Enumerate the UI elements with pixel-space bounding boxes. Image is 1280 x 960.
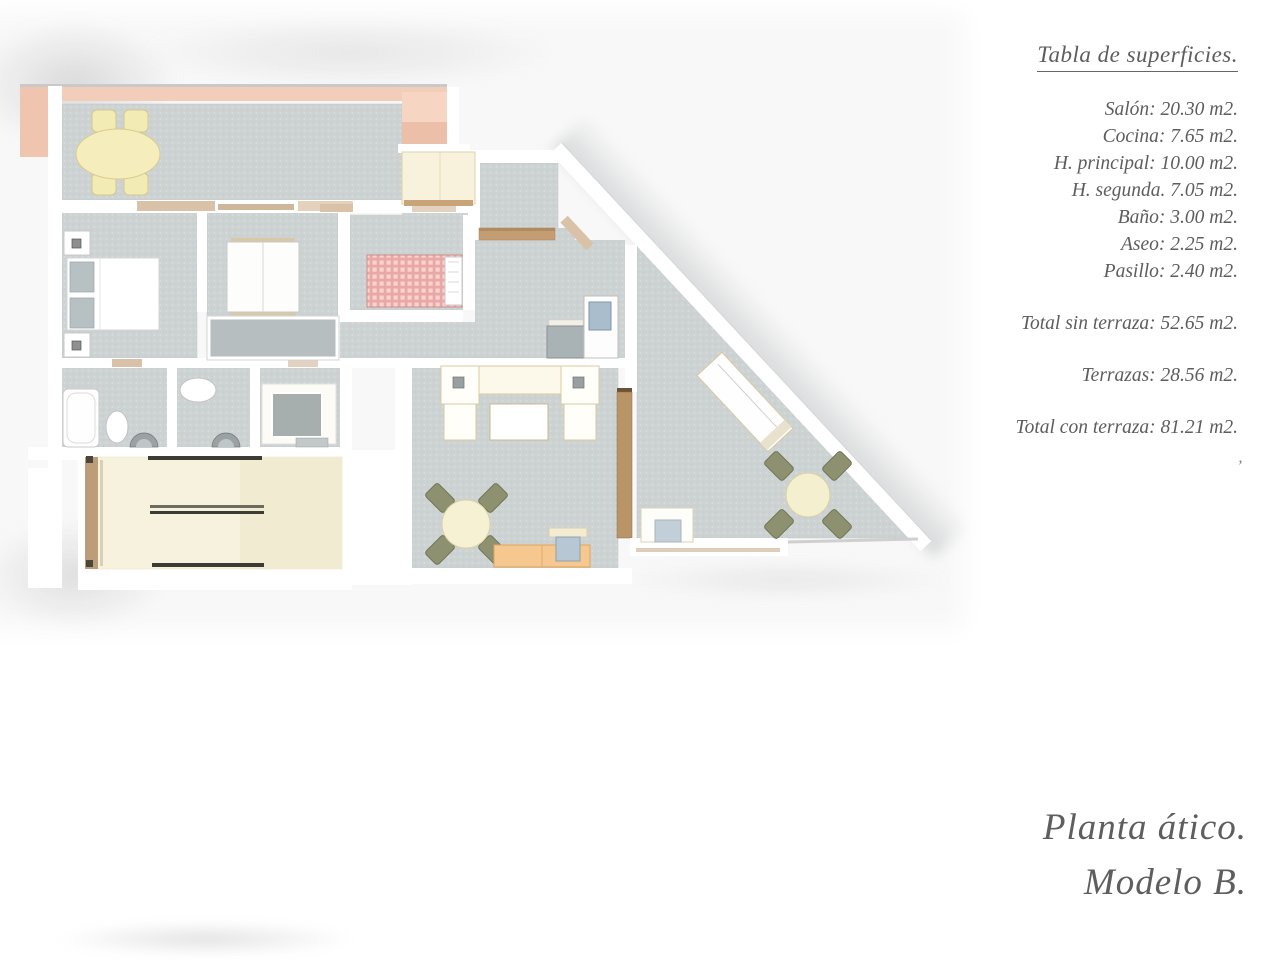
stair-side-line [100, 460, 103, 566]
bed-pillow-white [445, 257, 462, 305]
door-threshold-terrace-2 [218, 204, 294, 210]
bed-pillow [70, 298, 94, 328]
stair-rail-mid-2 [150, 511, 264, 514]
wall-bedroom-divider [197, 212, 207, 312]
stair-corner-mark-bottom [86, 560, 93, 567]
wall-kitchen-east [625, 245, 637, 392]
nightstand-lamp-icon [72, 341, 81, 350]
terrace-band-right-upper [402, 92, 447, 122]
surface-room-item: Pasillo: 2.40 m2. [978, 258, 1238, 285]
staircase-block [78, 450, 352, 590]
wall-bath-divider-1 [167, 368, 177, 447]
terrace-oval-table [76, 129, 160, 179]
wall-nook-east [340, 368, 352, 447]
door-threshold-bedroom2 [320, 204, 353, 212]
stray-mark: ’ [1237, 458, 1242, 476]
closet-base [404, 200, 473, 206]
total-without-terrace: Total sin terraza: 52.65 m2. [978, 310, 1238, 337]
door-threshold-bath [112, 359, 142, 367]
hall-north-floor [402, 213, 470, 240]
wall-living-south [340, 568, 632, 584]
terrace-chair [124, 110, 148, 132]
storage-room-floor [478, 163, 558, 228]
stair-rail-mid-1 [150, 505, 264, 508]
closet-body [402, 152, 475, 204]
surface-room-list: Salón: 20.30 m2. Cocina: 7.65 m2. H. pri… [978, 96, 1238, 285]
plan-title-line2: Modelo B. [1043, 855, 1247, 910]
plan-title-line1: Planta ático. [1043, 800, 1247, 855]
surface-room-item: H. segunda. 7.05 m2. [978, 177, 1238, 204]
page: { "surfaces": { "title": "Tabla de super… [0, 0, 1280, 960]
terraces-total: Terrazas: 28.56 m2. [978, 362, 1238, 389]
tv-table-top [549, 528, 587, 537]
plan-title: Planta ático. Modelo B. [1043, 800, 1247, 910]
terrace-edge-line [788, 539, 918, 542]
surface-table-title: Tabla de superficies. [1037, 42, 1238, 72]
bed-pillow [70, 262, 94, 292]
terrace-white-chair-seat [655, 520, 681, 542]
terrace-round-table [786, 473, 830, 517]
surface-room-item: Cocina: 7.65 m2. [978, 123, 1238, 150]
terrace-door-head [617, 388, 632, 392]
coffee-table [490, 404, 548, 440]
stair-rail-top [148, 456, 262, 460]
dining-round-table [442, 500, 490, 548]
wall-dressing-east [338, 212, 350, 322]
terrace-sill-line [636, 548, 780, 552]
terrace-band-top [20, 87, 447, 101]
wall-west-outer [48, 86, 62, 468]
nightstand-lamp-icon [72, 239, 81, 248]
wall-bath-divider-2 [250, 368, 260, 447]
vanity-chair [272, 393, 322, 437]
kitchen-counter [547, 326, 585, 358]
hallway-floor [340, 322, 480, 358]
armchair-seat [444, 404, 476, 440]
terrace-sliding-door [617, 392, 632, 538]
tv-set [556, 537, 580, 561]
toilet-2 [180, 378, 216, 402]
vanity-nook [262, 384, 336, 447]
surface-room-item: Baño: 3.00 m2. [978, 204, 1238, 231]
wall-west-bottom-step [28, 468, 62, 588]
total-with-terrace: Total con terraza: 81.21 m2. [978, 414, 1238, 441]
armchair-cushion-icon [573, 377, 584, 388]
wall-bedroom2-south [340, 310, 463, 322]
hall-closet [402, 152, 475, 206]
surface-room-item: Aseo: 2.25 m2. [978, 231, 1238, 258]
top-edge-line [20, 84, 447, 87]
surface-table: Tabla de superficies. Salón: 20.30 m2. C… [978, 42, 1238, 441]
stair-corner-mark-top [86, 456, 93, 463]
second-bedroom-furniture [367, 255, 462, 307]
vanity-tray [296, 438, 328, 447]
door-threshold-terrace-1 [137, 201, 215, 211]
armchair-cushion-icon [453, 377, 464, 388]
wall-storage-north [468, 150, 560, 163]
toilet [106, 411, 128, 443]
storage-shelf-edge [479, 228, 555, 231]
surface-room-item: Salón: 20.30 m2. [978, 96, 1238, 123]
wall-entrance-block [345, 450, 412, 585]
sofa-bench [479, 366, 561, 394]
surface-room-item: H. principal: 10.00 m2. [978, 150, 1238, 177]
stair-wood-strip [85, 457, 98, 569]
armchair-seat [564, 404, 596, 440]
dresser [209, 318, 337, 358]
refrigerator-door [589, 302, 611, 330]
stair-rail-bottom [152, 563, 264, 567]
